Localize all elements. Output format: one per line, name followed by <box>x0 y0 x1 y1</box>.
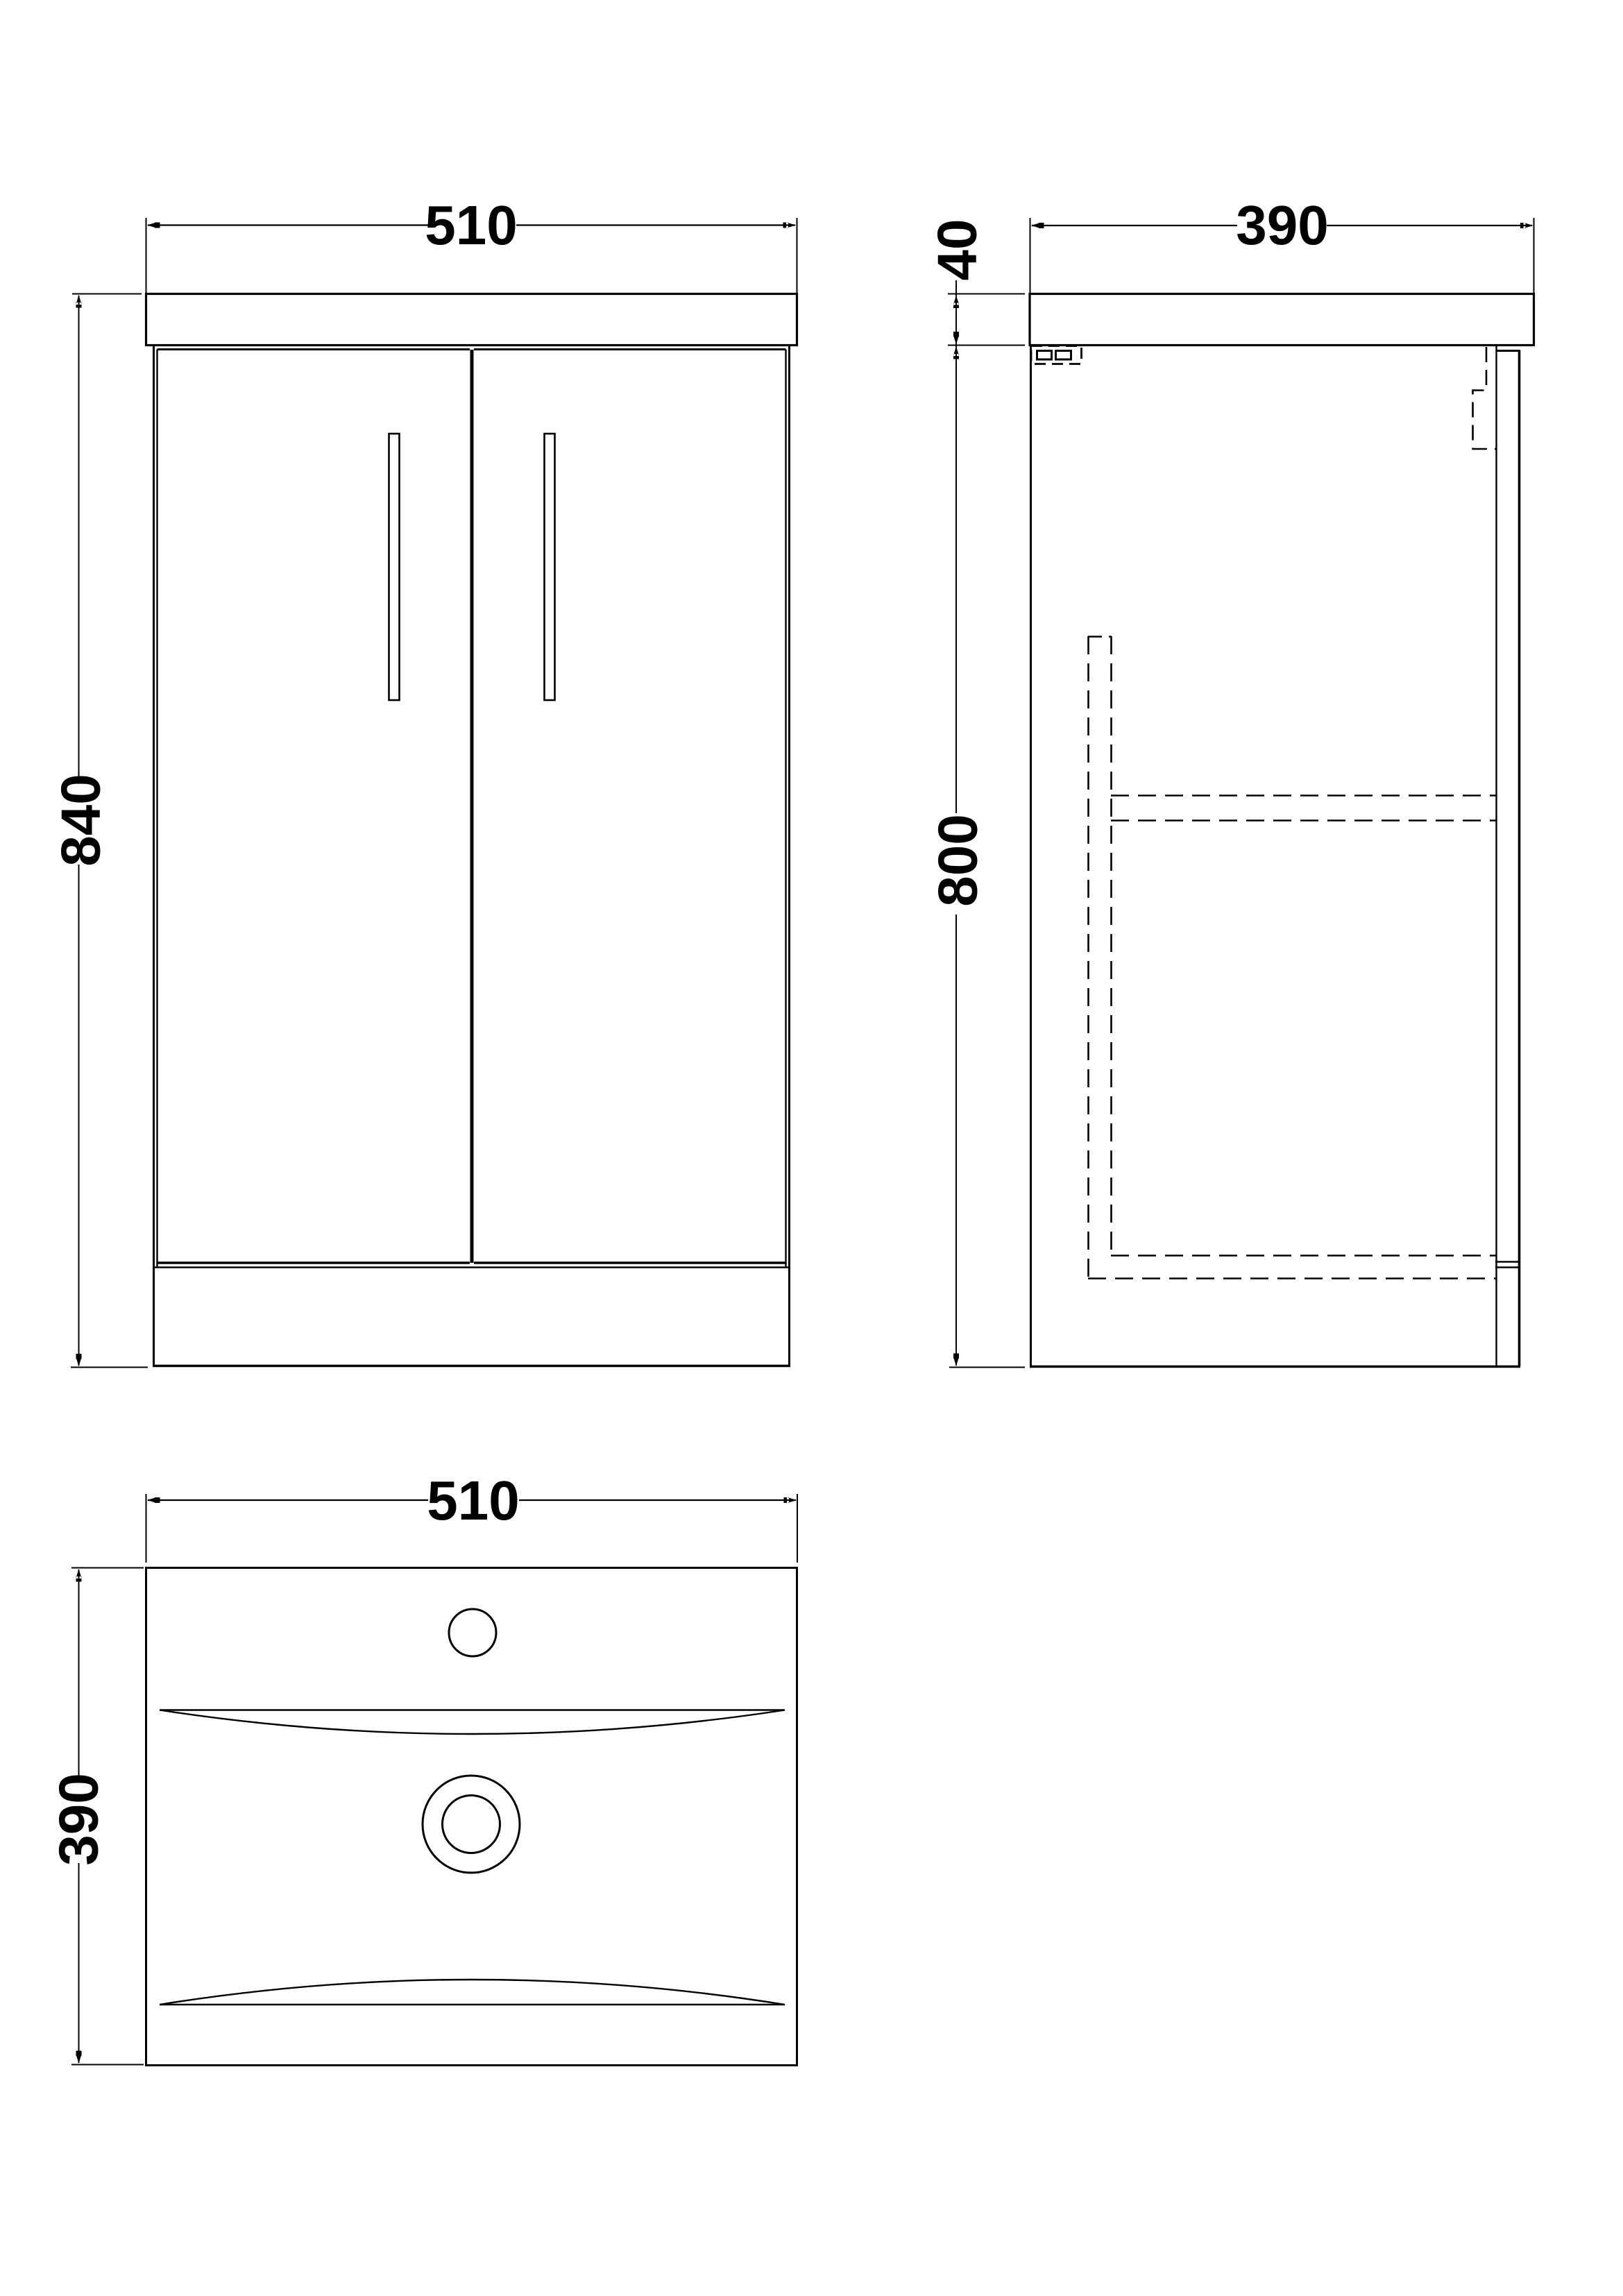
svg-text:390: 390 <box>1236 194 1328 256</box>
svg-text:800: 800 <box>927 814 989 906</box>
svg-text:510: 510 <box>427 1470 519 1531</box>
svg-text:510: 510 <box>425 194 517 256</box>
svg-text:40: 40 <box>926 219 988 281</box>
svg-text:390: 390 <box>48 1773 110 1865</box>
svg-text:840: 840 <box>50 774 112 866</box>
